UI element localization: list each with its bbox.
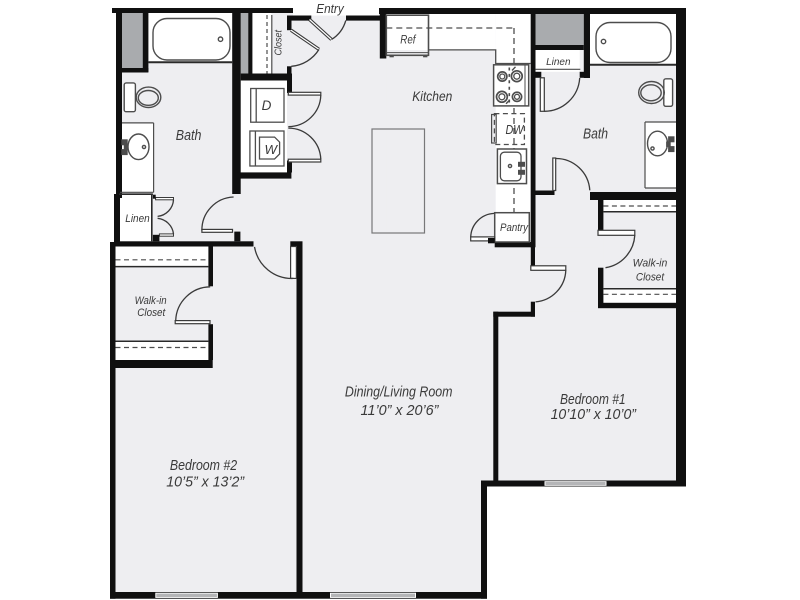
svg-text:10’10” x 10’0”: 10’10” x 10’0” (551, 406, 637, 423)
svg-text:Dining/Living Room: Dining/Living Room (345, 384, 453, 401)
svg-text:Closet: Closet (636, 272, 665, 284)
svg-text:Bedroom #2: Bedroom #2 (170, 457, 238, 474)
svg-text:Bath: Bath (176, 128, 202, 144)
svg-text:DW: DW (506, 122, 525, 137)
svg-text:W: W (265, 142, 279, 157)
svg-text:Pantry: Pantry (500, 222, 529, 234)
svg-text:Entry: Entry (316, 2, 344, 16)
svg-text:11’0” x 20’6”: 11’0” x 20’6” (361, 402, 440, 419)
svg-text:10’5” x 13’2”: 10’5” x 13’2” (166, 474, 245, 491)
svg-text:Ref: Ref (400, 35, 417, 47)
svg-text:Kitchen: Kitchen (412, 89, 452, 104)
svg-text:Closet: Closet (137, 307, 166, 319)
svg-text:Walk-in: Walk-in (633, 257, 668, 269)
svg-text:Closet: Closet (273, 29, 285, 55)
svg-text:Bath: Bath (583, 127, 608, 143)
svg-text:D: D (262, 98, 272, 113)
svg-text:Linen: Linen (546, 56, 571, 68)
svg-text:Walk-in: Walk-in (135, 295, 167, 307)
svg-text:Linen: Linen (125, 213, 149, 225)
